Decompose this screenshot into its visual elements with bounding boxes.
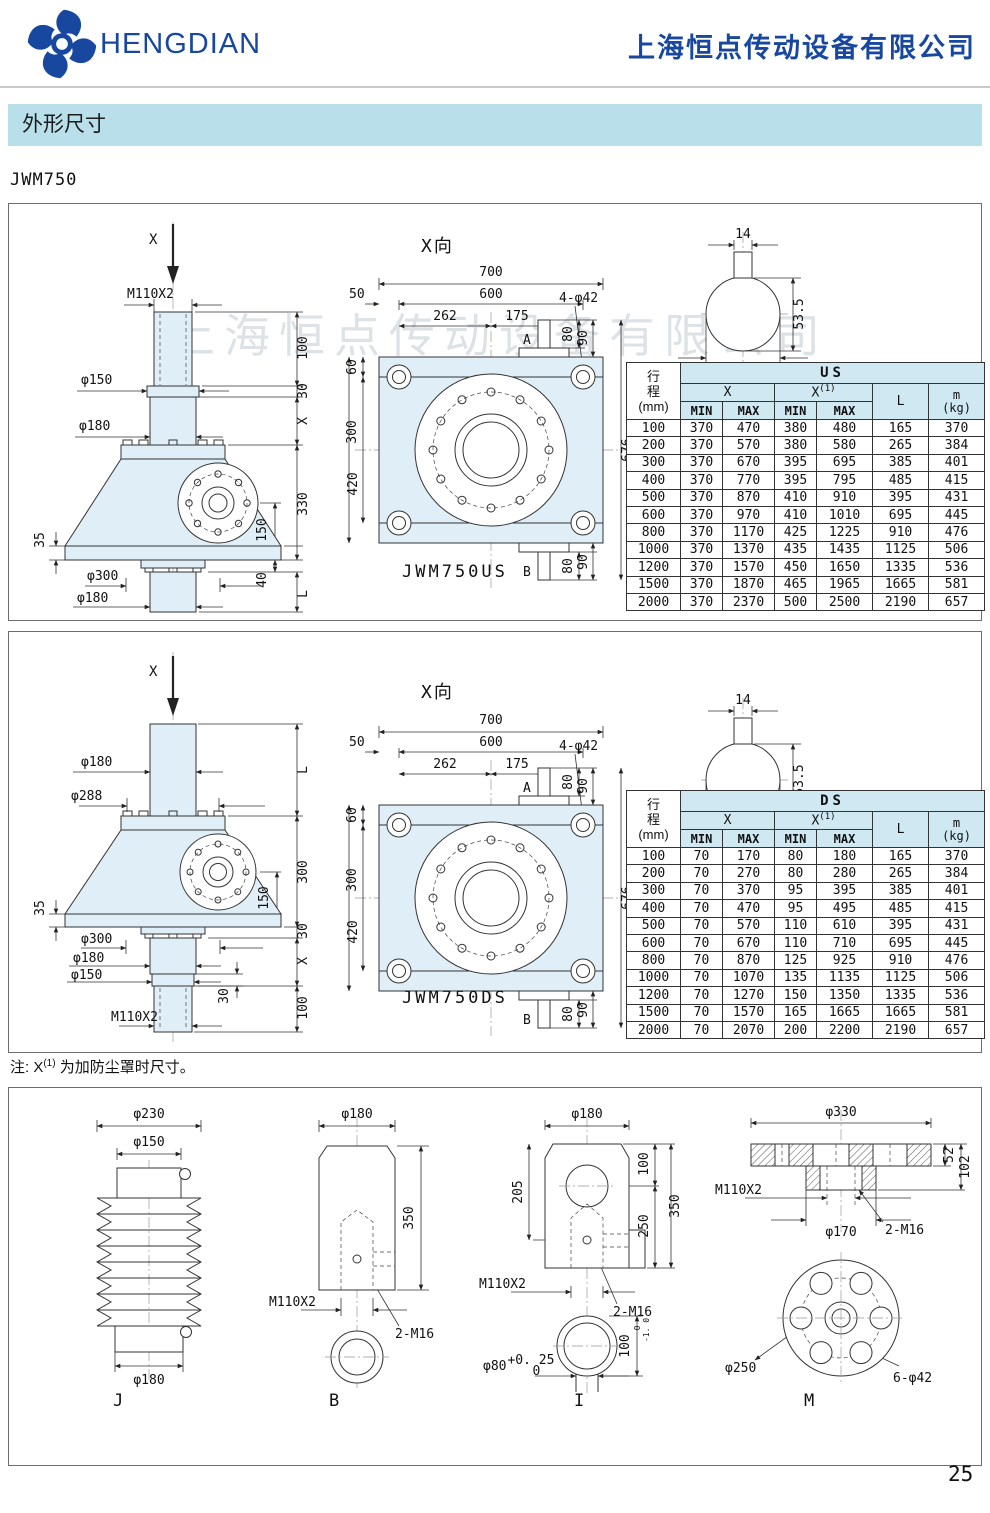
table-cell: 265 <box>873 437 929 454</box>
table-row: 200370570380580265384 <box>627 437 985 454</box>
table-cell: 384 <box>929 865 985 882</box>
jack-body <box>65 312 281 612</box>
dim-label: φ230 <box>133 1107 164 1122</box>
shaft-b-label: B <box>523 565 531 580</box>
dim-label: 150 <box>255 518 270 541</box>
dim-label: φ180 <box>81 755 112 770</box>
table-cell: 570 <box>723 437 775 454</box>
table-row: 1007017080180165370 <box>627 848 985 865</box>
dim-label: 350 <box>402 1206 417 1229</box>
dim-label: L <box>296 766 311 774</box>
table-col-header: MAX <box>723 830 775 848</box>
table-cell: 1335 <box>873 987 929 1004</box>
table-cell: 70 <box>681 1004 723 1021</box>
dim-label: 700 <box>479 713 502 728</box>
dim-label: 52 <box>942 1147 957 1163</box>
table-cell: 1965 <box>817 576 873 593</box>
table-col-header: 行 程 (mm) <box>627 363 681 420</box>
accessory-b-drawing: φ180 350 M110X2 2-M16 <box>267 1102 467 1392</box>
view-direction-title: X向 <box>421 232 454 258</box>
table-cell: 70 <box>681 900 723 917</box>
footnote-text: 注: X <box>10 1059 43 1076</box>
table-cell: 270 <box>723 865 775 882</box>
page-number: 25 <box>948 1462 973 1486</box>
table-cell: 465 <box>775 576 817 593</box>
table-cell: 536 <box>929 559 985 576</box>
table-col-header: MAX <box>817 402 873 420</box>
x-direction-label: X <box>149 232 158 248</box>
table-cell: 200 <box>627 437 681 454</box>
table-cell: 600 <box>627 506 681 523</box>
table-row: 100070107013511351125506 <box>627 969 985 986</box>
dim-label: M110X2 <box>479 1277 526 1292</box>
table-cell: 410 <box>775 489 817 506</box>
dim-label: 330 <box>296 492 311 515</box>
table-cell: 70 <box>681 952 723 969</box>
table-cell: 476 <box>929 952 985 969</box>
table-col-header: 行 程 (mm) <box>627 791 681 848</box>
catalog-page: HENGDIAN 上海恒点传动设备有限公司 外形尺寸 JWM750 上海恒点传动… <box>0 0 990 1513</box>
table-cell: 435 <box>775 541 817 558</box>
table-cell: 1665 <box>873 1004 929 1021</box>
table-cell: 370 <box>681 472 723 489</box>
accessory-i-drawing: φ180 205 100 250 350 M110X2 2-M16 φ80+0.… <box>479 1102 729 1402</box>
table-row: 200070207020022002190657 <box>627 1021 985 1038</box>
shaft-a-label: A <box>523 781 531 796</box>
table-cell: 150 <box>775 987 817 1004</box>
table-cell: 80 <box>775 848 817 865</box>
dim-label: 30 <box>296 383 311 399</box>
table-cell: 385 <box>873 882 929 899</box>
table-cell: 495 <box>817 900 873 917</box>
table-cell: 870 <box>723 489 775 506</box>
table-row: 50070570110610395431 <box>627 917 985 934</box>
table-cell: 445 <box>929 506 985 523</box>
panel-jwm750us: 上海恒点传动设备有限公司 X <box>8 203 982 621</box>
table-cell: 395 <box>775 454 817 471</box>
table-cell: 1200 <box>627 987 681 1004</box>
panel-accessories: φ230 φ150 φ180 φ180 350 M110X2 <box>8 1087 982 1466</box>
table-cell: 125 <box>775 952 817 969</box>
us-dimension-table: 行 程 (mm) US X X(1) L m (kg) MIN MAX MIN … <box>626 362 985 611</box>
footnote: 注: X(1) 为加防尘罩时尺寸。 <box>10 1056 195 1077</box>
table-cell: 1570 <box>723 559 775 576</box>
table-cell: 800 <box>627 524 681 541</box>
table-row: 500370870410910395431 <box>627 489 985 506</box>
table-cell: 165 <box>873 848 929 865</box>
dim-label: 420 <box>346 920 361 943</box>
dim-label: 60 <box>345 807 360 823</box>
cap-body <box>319 1146 395 1383</box>
table-cell: 1070 <box>723 969 775 986</box>
dim-label: 4-φ42 <box>559 291 598 306</box>
table-cell: 570 <box>723 917 775 934</box>
table-row: 150070157016516651665581 <box>627 1004 985 1021</box>
table-cell: 384 <box>929 437 985 454</box>
table-cell: 431 <box>929 917 985 934</box>
table-cell: 70 <box>681 1021 723 1038</box>
table-cell: 370 <box>681 506 723 523</box>
table-cell: 265 <box>873 865 929 882</box>
table-cell: 1370 <box>723 541 775 558</box>
table-cell: 450 <box>775 559 817 576</box>
dim-label: 40 <box>255 572 270 588</box>
dim-label: φ180 <box>341 1107 372 1122</box>
table-cell: 380 <box>775 420 817 437</box>
footnote-text: 为加防尘罩时尺寸。 <box>56 1059 195 1076</box>
accessory-label-b: B <box>329 1391 342 1411</box>
table-cell: 870 <box>723 952 775 969</box>
table-cell: 400 <box>627 472 681 489</box>
table-row: 80070870125925910476 <box>627 952 985 969</box>
table-cell: 180 <box>817 848 873 865</box>
table-cell: 370 <box>681 576 723 593</box>
accessory-label-i: I <box>574 1391 587 1411</box>
dim-label: 700 <box>479 265 502 280</box>
dim-label: 250 <box>637 1214 652 1237</box>
table-row: 1000370137043514351125506 <box>627 541 985 558</box>
table-cell: 280 <box>817 865 873 882</box>
x-direction-label: X <box>149 664 158 680</box>
table-cell: 370 <box>681 420 723 437</box>
table-cell: 410 <box>775 506 817 523</box>
company-name: 上海恒点传动设备有限公司 <box>628 26 976 65</box>
table-cell: 425 <box>775 524 817 541</box>
table-cell: 95 <box>775 900 817 917</box>
table-cell: 70 <box>681 848 723 865</box>
model-label: JWM750 <box>10 170 77 190</box>
table-cell: 70 <box>681 865 723 882</box>
dim-label: 175 <box>505 757 528 772</box>
dim-label: X <box>296 417 311 425</box>
table-cell: 670 <box>723 934 775 951</box>
table-cell: 370 <box>681 437 723 454</box>
table-cell: 2190 <box>873 593 929 610</box>
table-row: 3007037095395385401 <box>627 882 985 899</box>
dim-label: 100 <box>296 996 311 1019</box>
dim-label: φ150 <box>71 968 102 983</box>
accessory-label-m: M <box>804 1391 817 1411</box>
table-cell: 910 <box>873 952 929 969</box>
table-cell: 395 <box>873 917 929 934</box>
dim-label: M110X2 <box>111 1010 158 1025</box>
us-shaft-end-view: 14 53.5 φ50h7 <box>661 224 831 376</box>
dim-label: 80 <box>561 1006 576 1022</box>
table-cell: 1665 <box>873 576 929 593</box>
dim-label: 2-M16 <box>395 1327 434 1342</box>
table-cell: 1125 <box>873 541 929 558</box>
dim-label: 262 <box>433 309 456 324</box>
table-cell: 600 <box>627 934 681 951</box>
table-col-header: X <box>681 384 775 402</box>
dim-label: M110X2 <box>269 1295 316 1310</box>
us-side-view-drawing: X <box>23 208 333 614</box>
header-divider <box>0 86 990 88</box>
table-col-header: L <box>873 384 929 420</box>
table-cell: 1500 <box>627 576 681 593</box>
dim-label: 35 <box>33 900 48 916</box>
table-cell: 370 <box>681 541 723 558</box>
table-cell: 2500 <box>817 593 873 610</box>
dim-label: 2-M16 <box>885 1223 924 1238</box>
table-cell: 400 <box>627 900 681 917</box>
table-cell: 1350 <box>817 987 873 1004</box>
table-cell: 80 <box>775 865 817 882</box>
table-row: 4007047095495485415 <box>627 900 985 917</box>
table-cell: 670 <box>723 454 775 471</box>
table-cell: 95 <box>775 882 817 899</box>
table-cell: 910 <box>873 524 929 541</box>
dim-label: 90 <box>576 330 591 346</box>
housing-plate <box>379 320 603 580</box>
table-cell: 370 <box>929 848 985 865</box>
table-cell: 370 <box>723 882 775 899</box>
accessory-j-drawing: φ230 φ150 φ180 <box>39 1102 259 1392</box>
accessory-m-drawing: φ330 52 102 M110X2 2-M16 φ170 φ250 6-φ42 <box>701 1102 977 1402</box>
table-cell: 1125 <box>873 969 929 986</box>
table-cell: 1650 <box>817 559 873 576</box>
table-col-header: X(1) <box>775 384 873 402</box>
table-cell: 1000 <box>627 969 681 986</box>
dim-label: L <box>296 590 311 598</box>
flange-body <box>751 1144 931 1384</box>
table-cell: 970 <box>723 506 775 523</box>
table-cell: 370 <box>681 593 723 610</box>
dim-label: M110X2 <box>715 1183 762 1198</box>
table-row: 2000370237050025002190657 <box>627 593 985 610</box>
table-cell: 70 <box>681 917 723 934</box>
shaft-a-label: A <box>523 333 531 348</box>
dim-label: 30 <box>217 988 232 1004</box>
dim-tolerance: 0 <box>633 1325 642 1330</box>
dim-label: 100 <box>618 1334 633 1357</box>
dim-label: φ180 <box>77 591 108 606</box>
dim-label: φ180 <box>571 1107 602 1122</box>
table-cell: 2190 <box>873 1021 929 1038</box>
table-col-header: X <box>681 812 775 830</box>
table-cell: 1500 <box>627 1004 681 1021</box>
table-cell: 485 <box>873 900 929 917</box>
table-cell: 536 <box>929 987 985 1004</box>
table-cell: 70 <box>681 882 723 899</box>
dim-label: φ150 <box>81 373 112 388</box>
table-cell: 370 <box>681 524 723 541</box>
dim-label: 300 <box>345 868 360 891</box>
accessory-label-j: J <box>113 1391 126 1411</box>
table-cell: 610 <box>817 917 873 934</box>
x-direction-arrow <box>167 656 179 716</box>
table-row: 6003709704101010695445 <box>627 506 985 523</box>
table-row: 1500370187046519651665581 <box>627 576 985 593</box>
dim-label: 300 <box>296 860 311 883</box>
table-col-header: X(1) <box>775 812 873 830</box>
dim-label: 2-M16 <box>613 1305 652 1320</box>
table-col-header: MAX <box>723 402 775 420</box>
table-cell: 165 <box>873 420 929 437</box>
table-cell: 580 <box>817 437 873 454</box>
dim-label: 205 <box>511 1180 526 1203</box>
table-cell: 170 <box>723 848 775 865</box>
table-cell: 1270 <box>723 987 775 1004</box>
table-col-header: m (kg) <box>929 384 985 420</box>
dim-label: 14 <box>735 227 751 242</box>
table-cell: 401 <box>929 454 985 471</box>
table-col-header: MIN <box>681 402 723 420</box>
table-row: 120070127015013501335536 <box>627 987 985 1004</box>
dim-label: 90 <box>576 1002 591 1018</box>
section-title: 外形尺寸 <box>8 104 106 146</box>
drawing-label-ds: JWM750DS <box>402 988 508 1008</box>
shaft-b-label: B <box>523 1013 531 1028</box>
table-cell: 1170 <box>723 524 775 541</box>
view-direction-title: X向 <box>421 678 454 704</box>
table-cell: 800 <box>627 952 681 969</box>
table-cell: 925 <box>817 952 873 969</box>
table-cell: 70 <box>681 969 723 986</box>
dim-label: 80 <box>561 558 576 574</box>
table-group-header: US <box>681 363 985 384</box>
dim-label: φ170 <box>825 1225 856 1240</box>
dim-label: 100 <box>296 336 311 359</box>
table-cell: 1435 <box>817 541 873 558</box>
table-cell: 135 <box>775 969 817 986</box>
table-cell: 370 <box>681 489 723 506</box>
dim-label: 90 <box>576 778 591 794</box>
hengdian-logo-icon <box>26 8 98 80</box>
table-cell: 70 <box>681 934 723 951</box>
table-group-header: DS <box>681 791 985 812</box>
table-cell: 695 <box>873 506 929 523</box>
table-cell: 445 <box>929 934 985 951</box>
table-row: 100370470380480165370 <box>627 420 985 437</box>
table-cell: 470 <box>723 900 775 917</box>
table-cell: 581 <box>929 576 985 593</box>
table-cell: 300 <box>627 454 681 471</box>
dim-label: 14 <box>735 693 751 708</box>
table-cell: 480 <box>817 420 873 437</box>
table-cell: 1135 <box>817 969 873 986</box>
dim-label: 50 <box>349 287 365 302</box>
dim-label: φ300 <box>87 569 118 584</box>
table-cell: 370 <box>681 559 723 576</box>
table-row: 1200370157045016501335536 <box>627 559 985 576</box>
dim-label: 50 <box>349 735 365 750</box>
table-cell: 110 <box>775 934 817 951</box>
table-cell: 910 <box>817 489 873 506</box>
dim-label: φ80+0. 250 <box>483 1353 554 1379</box>
table-col-header: m (kg) <box>929 812 985 848</box>
dim-label: 600 <box>479 287 502 302</box>
dim-label: φ300 <box>81 932 112 947</box>
table-row: 2007027080280265384 <box>627 865 985 882</box>
table-cell: 110 <box>775 917 817 934</box>
table-cell: 200 <box>775 1021 817 1038</box>
table-cell: 770 <box>723 472 775 489</box>
dim-label: 100 <box>637 1152 652 1175</box>
table-cell: 695 <box>873 934 929 951</box>
table-col-header: MIN <box>775 402 817 420</box>
table-cell: 165 <box>775 1004 817 1021</box>
table-cell: 506 <box>929 541 985 558</box>
table-cell: 695 <box>817 454 873 471</box>
table-cell: 70 <box>681 987 723 1004</box>
table-cell: 370 <box>681 454 723 471</box>
table-cell: 380 <box>775 437 817 454</box>
dim-label: 90 <box>576 554 591 570</box>
table-col-header: MIN <box>681 830 723 848</box>
dim-label: 30 <box>296 923 311 939</box>
table-cell: 485 <box>873 472 929 489</box>
table-cell: 2000 <box>627 593 681 610</box>
dim-label: 150 <box>257 886 272 909</box>
dim-label: 262 <box>433 757 456 772</box>
table-col-header: L <box>873 812 929 848</box>
us-top-view-drawing: 700 600 50 262 175 4-φ42 A B 80 90 80 90… <box>341 260 641 592</box>
table-cell: 2200 <box>817 1021 873 1038</box>
table-cell: 476 <box>929 524 985 541</box>
table-row: 80037011704251225910476 <box>627 524 985 541</box>
table-cell: 1570 <box>723 1004 775 1021</box>
table-cell: 415 <box>929 472 985 489</box>
table-cell: 2000 <box>627 1021 681 1038</box>
table-cell: 470 <box>723 420 775 437</box>
section-banner: 外形尺寸 <box>8 104 982 146</box>
dim-label: φ180 <box>133 1373 164 1388</box>
table-cell: 100 <box>627 848 681 865</box>
table-col-header: MAX <box>817 830 873 848</box>
table-cell: 500 <box>775 593 817 610</box>
dim-label: φ180 <box>79 419 110 434</box>
table-cell: 500 <box>627 489 681 506</box>
table-cell: 581 <box>929 1004 985 1021</box>
dim-label: φ330 <box>825 1105 856 1120</box>
table-cell: 2070 <box>723 1021 775 1038</box>
table-cell: 1200 <box>627 559 681 576</box>
ds-dimension-table: 行 程 (mm) DS X X(1) L m (kg) MIN MAX MIN … <box>626 790 985 1039</box>
brand-name: HENGDIAN <box>100 28 261 61</box>
panel-jwm750ds: X <box>8 631 982 1053</box>
table-cell: 657 <box>929 593 985 610</box>
table-cell: 500 <box>627 917 681 934</box>
table-cell: 1000 <box>627 541 681 558</box>
dim-label: 6-φ42 <box>893 1371 932 1386</box>
table-cell: 100 <box>627 420 681 437</box>
dim-label: φ250 <box>725 1361 756 1376</box>
table-cell: 710 <box>817 934 873 951</box>
dim-label: 350 <box>668 1194 683 1217</box>
table-row: 300370670395695385401 <box>627 454 985 471</box>
dim-label: 80 <box>561 774 576 790</box>
table-cell: 431 <box>929 489 985 506</box>
table-row: 60070670110710695445 <box>627 934 985 951</box>
footnote-sup: (1) <box>43 1058 55 1069</box>
x-direction-arrow <box>167 224 179 284</box>
dim-label: 102 <box>958 1155 973 1178</box>
dim-label: φ180 <box>73 951 104 966</box>
dim-label: φ288 <box>71 789 102 804</box>
table-cell: 415 <box>929 900 985 917</box>
dim-label: 53.5 <box>792 298 807 329</box>
table-cell: 395 <box>817 882 873 899</box>
table-col-header: MIN <box>775 830 817 848</box>
dim-label: 600 <box>479 735 502 750</box>
table-cell: 1335 <box>873 559 929 576</box>
table-cell: 395 <box>873 489 929 506</box>
dim-tolerance: -1. 0 <box>642 1318 651 1342</box>
table-cell: 1225 <box>817 524 873 541</box>
table-cell: 1870 <box>723 576 775 593</box>
table-cell: 385 <box>873 454 929 471</box>
